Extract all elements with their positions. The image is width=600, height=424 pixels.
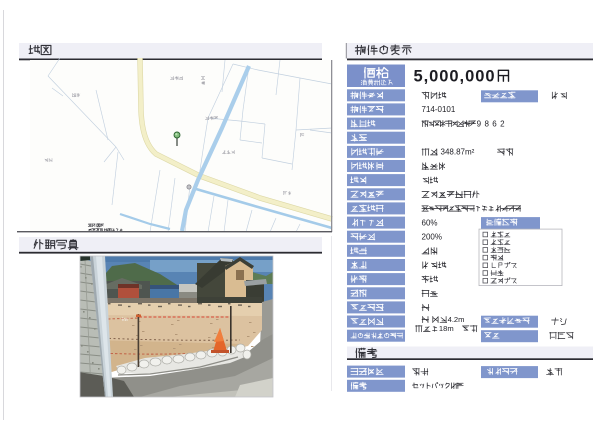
svg-text:348.87m²: 348.87m²	[441, 148, 475, 157]
svg-text:18m: 18m	[439, 324, 454, 333]
svg-text:9862: 9862	[477, 119, 508, 128]
svg-text:60%: 60%	[422, 218, 438, 227]
svg-text:5,000,000: 5,000,000	[414, 67, 496, 85]
svg-text:200%: 200%	[422, 233, 442, 242]
svg-text:714-0101: 714-0101	[422, 105, 456, 114]
svg-text:4.2m: 4.2m	[448, 315, 465, 324]
svg-text:kw: kw	[122, 317, 129, 323]
